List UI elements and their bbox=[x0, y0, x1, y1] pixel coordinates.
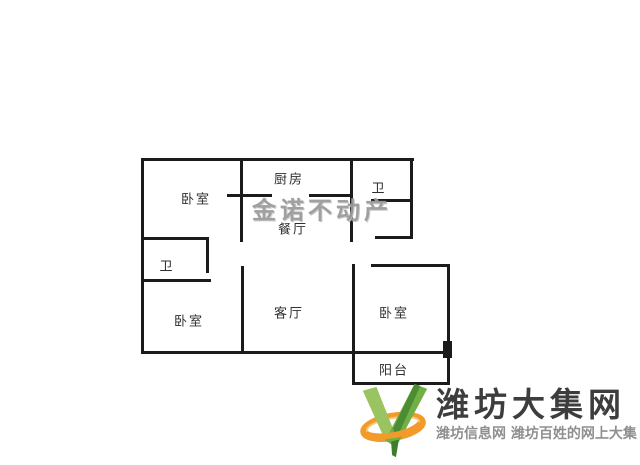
wall-bath-left-bottom bbox=[141, 279, 211, 282]
wall-dining-left-upper bbox=[240, 158, 243, 242]
logo-text-block: 潍坊大集网 潍坊信息网 潍坊百姓的网上大集 bbox=[436, 382, 637, 442]
room-label-bedroom-top-left: 卧室 bbox=[181, 189, 211, 208]
logo-title: 潍坊大集网 bbox=[436, 386, 637, 424]
room-label-bedroom-right: 卧室 bbox=[379, 303, 409, 322]
wall-balcony-door-block bbox=[443, 341, 452, 358]
wall-bath-left-top bbox=[141, 237, 209, 240]
wall-bath-left-right bbox=[206, 237, 209, 273]
room-label-bathroom-left: 卫 bbox=[159, 256, 174, 275]
room-label-kitchen: 厨房 bbox=[274, 169, 304, 188]
logo-v-checkmark-icon bbox=[356, 382, 434, 460]
wall-outer-bottom bbox=[141, 351, 451, 354]
room-label-bedroom-bottom-left: 卧室 bbox=[174, 311, 204, 330]
wall-outer-top bbox=[141, 158, 414, 161]
wall-living-right bbox=[352, 264, 355, 385]
logo-tagline: 潍坊信息网 潍坊百姓的网上大集 bbox=[436, 426, 637, 442]
site-logo: 潍坊大集网 潍坊信息网 潍坊百姓的网上大集 bbox=[356, 382, 637, 460]
wall-bedroom-right-right bbox=[447, 264, 450, 385]
room-label-balcony: 阳台 bbox=[379, 360, 409, 379]
wall-entry-bottom bbox=[375, 236, 413, 239]
wall-living-left bbox=[241, 266, 244, 354]
wall-outer-left bbox=[141, 158, 144, 354]
room-label-living-room: 客厅 bbox=[274, 303, 304, 322]
floorplan-image: 卧室厨房卫餐厅卫卧室客厅卧室阳台 金诺不动产 潍坊大集网 潍坊信息网 潍坊百姓的… bbox=[0, 0, 640, 465]
wall-bedroom-right-top bbox=[371, 264, 450, 267]
agency-watermark-text: 金诺不动产 bbox=[252, 191, 392, 226]
wall-bedroom1-door-tick bbox=[227, 194, 240, 197]
